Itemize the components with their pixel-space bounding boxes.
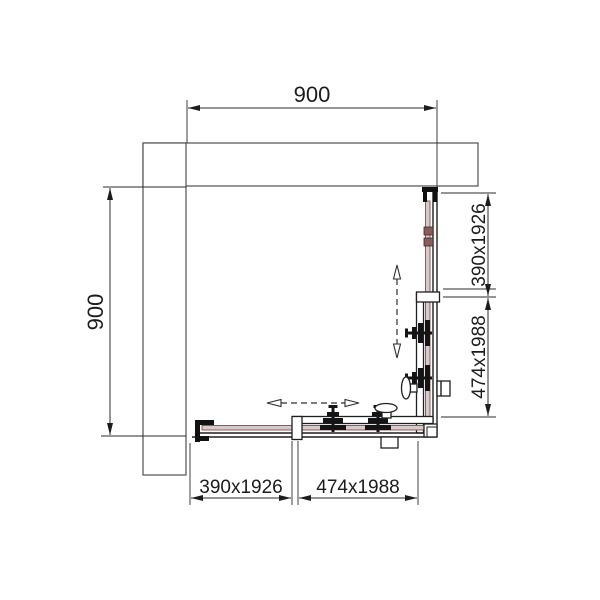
roller [320, 405, 346, 432]
bottom-sliding-door [293, 417, 433, 424]
bottom-glass-assembly [192, 404, 437, 449]
arrow-left-icon [299, 495, 311, 501]
roller [405, 320, 432, 346]
bottom-dimensions: 390x1926 474x1988 [190, 441, 418, 505]
bottom-door-slide-arrow [267, 400, 359, 407]
bottom-wall-profile [195, 420, 214, 442]
top-wall [143, 143, 478, 186]
bottom-fixed-panel-label: 390x1926 [199, 477, 282, 498]
arrow-down-icon [107, 423, 113, 435]
arrow-right-icon [405, 495, 417, 501]
arrow-up-icon [394, 265, 401, 279]
glass-clamp [424, 227, 433, 235]
right-door-panel-label: 474x1988 [469, 315, 490, 398]
bottom-door-panel-label: 474x1988 [316, 477, 399, 498]
right-wall-profile [422, 187, 438, 202]
arrow-up-icon [485, 298, 491, 310]
right-door-slide-arrow [394, 265, 401, 358]
right-sliding-door [417, 293, 424, 433]
arrow-down-icon [485, 404, 491, 416]
corner-post [424, 424, 437, 437]
right-fixed-glass [426, 201, 431, 431]
drawing-canvas: 900 900 390x1926 474x1988 390x1926 [0, 0, 600, 600]
arrow-right-icon [345, 400, 359, 407]
bottom-guide-bracket [381, 437, 398, 448]
bottom-door-left-bracket [292, 417, 302, 440]
right-door-top-bracket [417, 292, 440, 302]
bottom-fixed-glass [202, 426, 432, 431]
right-fixed-panel-label: 390x1926 [469, 203, 490, 286]
arrow-up-icon [107, 188, 113, 200]
right-glass-assembly [402, 187, 451, 437]
left-wall [143, 143, 186, 475]
left-depth-label: 900 [83, 294, 108, 331]
arrow-left-icon [188, 105, 200, 111]
arrow-down-icon [394, 344, 401, 358]
shower-enclosure-drawing: 900 900 390x1926 474x1988 390x1926 [0, 0, 600, 600]
arrow-left-icon [267, 400, 281, 407]
top-width-label: 900 [294, 82, 331, 107]
arrow-right-icon [424, 105, 436, 111]
glass-clamp [424, 238, 433, 246]
